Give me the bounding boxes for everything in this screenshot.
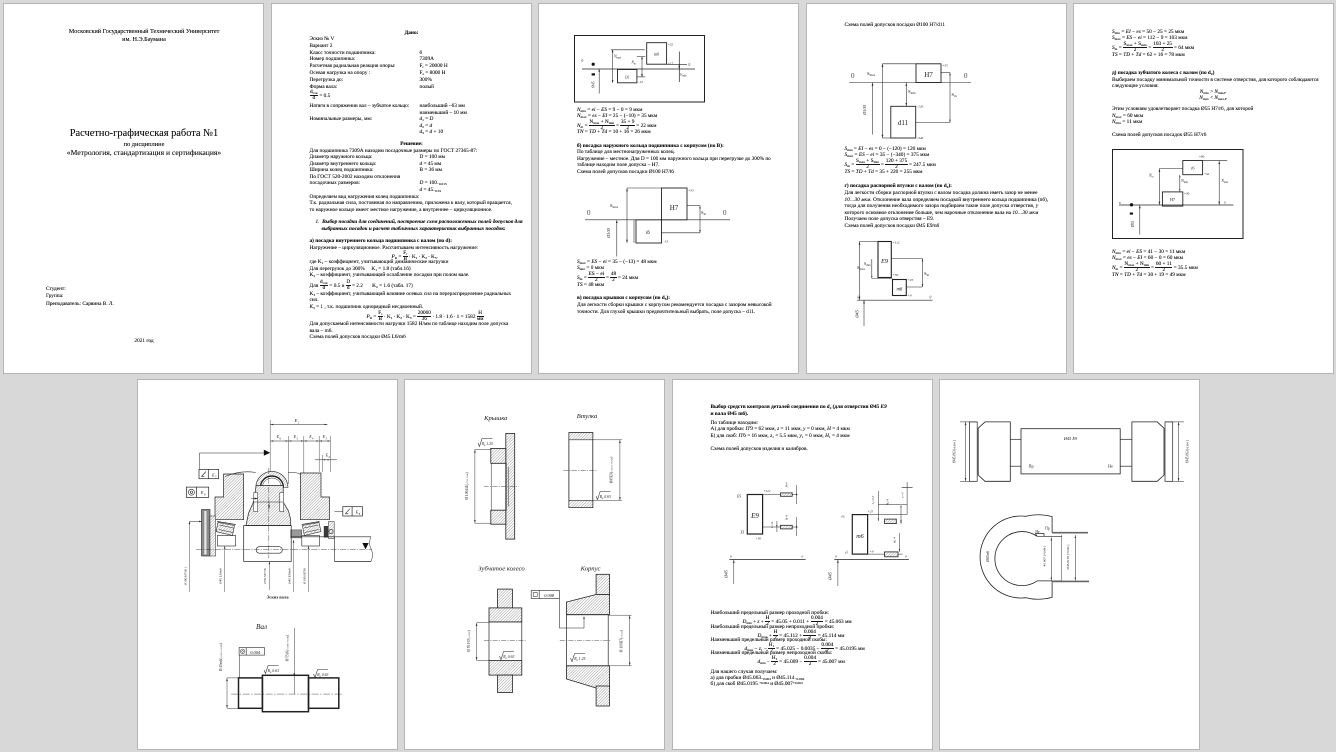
svg-text:m6: m6 [896,288,902,293]
svg-text:Ø45: Ø45 [827,571,832,581]
svg-text:m6: m6 [653,51,658,56]
svg-text:0: 0 [581,59,583,63]
svg-text:Ra 0.63: Ra 0.63 [266,669,278,674]
svg-text:Ra 0.63: Ra 0.63 [316,673,328,678]
svg-text:4: 4 [311,437,313,440]
svg-text:Ø 55r6(+0.060 +0.041): Ø 55r6(+0.060 +0.041) [285,633,289,660]
svg-text:l6: l6 [646,230,650,236]
svg-text:Ø100: Ø100 [862,104,867,116]
svg-text:45.007 (+0.004 ): 45.007 (+0.004 ) [1043,545,1047,566]
svg-text:0: 0 [964,72,968,80]
svg-text:Эскиз вала: Эскиз вала [266,594,289,599]
svg-text:ei: ei [845,550,848,554]
svg-text:Ø45м6: Ø45м6 [986,550,990,562]
svg-text:+25: +25 [668,42,674,46]
svg-text:m6: m6 [856,533,864,540]
svg-text:Nmin: Nmin [1181,179,1188,184]
svg-text:Ø100 H7/d11: Ø100 H7/d11 [183,566,187,585]
svg-text:Ø45: Ø45 [591,81,595,87]
svg-text:0: 0 [905,554,907,558]
svg-text:Nmax: Nmax [614,54,622,59]
svg-text:H1-4: H1-4 [892,536,897,543]
svg-text:y=3: y=3 [900,492,904,499]
svg-text:-12: -12 [638,80,643,84]
svg-text:z1=5.5: z1=5.5 [870,495,875,505]
svg-text:H7: H7 [670,204,679,212]
svg-text:es: es [841,514,845,518]
svg-text:Ø45.063(-0.004 ): Ø45.063(-0.004 ) [1186,439,1190,462]
svg-text:H-4: H-4 [784,514,788,520]
svg-text:Вал: Вал [255,623,266,631]
svg-text:r6: r6 [1190,166,1194,171]
svg-text:Ra 0.63: Ra 0.63 [502,655,514,660]
svg-text:0: 0 [1119,201,1121,205]
svg-text:Зубчатое колесо: Зубчатое колесо [478,565,525,572]
svg-text:H1-4: H1-4 [885,498,890,505]
svg-text:6: 6 [279,437,281,440]
svg-text:Ø 100d11(-0.12 -0.34): Ø 100d11(-0.12 -0.34) [465,471,469,499]
svg-text:z=11: z=11 [770,521,774,529]
svg-text:Sm: Sm [924,271,930,277]
svg-text:Ø45E9(+0.112 +0.050): Ø45E9(+0.112 +0.050) [610,455,614,482]
svg-text:Корпус: Корпус [580,565,601,572]
svg-text:2: 2 [328,456,330,459]
svg-text:0.004: 0.004 [250,650,261,655]
svg-text:-340: -340 [917,136,924,140]
svg-text:Крышка: Крышка [483,415,508,422]
svg-text:0: 0 [723,209,727,217]
svg-text:0: 0 [801,554,803,558]
svg-text:E9: E9 [750,512,759,520]
svg-text:Ø45 E9/m6: Ø45 E9/m6 [287,567,291,583]
svg-text:Smin: Smin [864,261,871,267]
svg-text:+25: +25 [907,278,913,282]
svg-text:Не: Не [1108,463,1113,468]
svg-text:Smax: Smax [867,71,875,77]
svg-text:Sm: Sm [701,210,707,216]
svg-text:+50: +50 [755,536,761,540]
svg-text:H-4: H-4 [784,482,788,488]
svg-text:+17: +17 [668,61,674,65]
svg-text:+60: +60 [1199,155,1205,159]
svg-text:Ø55 M7/r6: Ø55 M7/r6 [263,568,267,583]
svg-text:Втулка: Втулка [577,413,598,420]
svg-text:Ø100 H7/l6: Ø100 H7/l6 [302,567,306,583]
svg-text:Nm: Nm [630,60,635,65]
svg-text:0: 0 [730,554,732,558]
svg-text:+112: +112 [763,489,770,493]
svg-text:0.008: 0.008 [544,593,555,598]
svg-text:Пр: Пр [1028,463,1033,468]
svg-text:5: 5 [296,437,298,440]
svg-text:Smin: Smin [908,89,916,95]
svg-text:Ø45.063(-0.004 ): Ø45.063(-0.004 ) [953,439,957,462]
svg-text:Не: Не [1035,530,1040,534]
svg-text:+9: +9 [869,549,873,553]
svg-text:Пр: Пр [1045,526,1050,530]
svg-text:0: 0 [929,296,931,300]
svg-text:Nmax: Nmax [1220,179,1229,184]
svg-text:0: 0 [835,554,837,558]
svg-text:1: 1 [297,420,299,424]
svg-text:Nm: Nm [1148,174,1154,179]
svg-text:7: 7 [215,474,217,478]
svg-text:d11: d11 [897,119,908,127]
svg-text:0: 0 [1224,201,1226,205]
svg-text:Ø55: Ø55 [1131,221,1135,228]
svg-text:Ø 55 H7(+0.030): Ø 55 H7(+0.030) [467,629,471,651]
svg-text:+35: +35 [688,188,694,192]
svg-text:Ra 1.25: Ra 1.25 [481,442,493,447]
svg-text:Ra 0.63: Ra 0.63 [599,495,611,500]
svg-text:Ø 45m6(+0.025 +0.009): Ø 45m6(+0.025 +0.009) [219,642,223,671]
svg-text:+35: +35 [942,64,948,68]
svg-text:+30: +30 [1184,192,1190,196]
svg-text:0: 0 [851,72,855,80]
svg-text:-13: -13 [664,239,669,243]
svg-text:Ø100: Ø100 [606,227,611,239]
svg-text:8: 8 [358,511,360,515]
svg-text:Ø45 L6/m6: Ø45 L6/m6 [218,567,222,583]
svg-text:Ø45: Ø45 [723,569,728,579]
svg-text:0: 0 [587,209,591,217]
svg-text:+25: +25 [867,509,873,513]
svg-text:L6: L6 [624,74,629,79]
svg-text:ES: ES [736,494,741,498]
svg-text:0: 0 [203,492,205,496]
svg-text:Ø45.0195 (+0.004 ): Ø45.0195 (+0.004 ) [1066,544,1070,569]
svg-text:E9: E9 [880,258,889,265]
svg-text:Smax: Smax [610,203,618,209]
svg-text:Sm: Sm [951,92,957,98]
svg-text:0: 0 [857,296,859,300]
svg-text:Ø45: Ø45 [854,309,859,318]
svg-text:H7: H7 [1170,197,1175,202]
svg-text:-120: -120 [917,105,924,109]
svg-text:+112: +112 [892,241,899,245]
svg-text:0: 0 [688,62,690,66]
svg-text:3: 3 [325,437,327,440]
svg-text:Ø45 Е9: Ø45 Е9 [1063,436,1078,441]
svg-text:Nmin: Nmin [680,72,687,77]
svg-text:+41: +41 [1204,172,1210,176]
svg-text:H7: H7 [924,71,933,79]
svg-text:+9: +9 [907,294,911,298]
svg-text:EI: EI [739,530,744,534]
svg-text:Ra 1.25: Ra 1.25 [573,657,585,662]
svg-text:Ø 100H7(+0.035): Ø 100H7(+0.035) [620,628,624,651]
svg-text:+50: +50 [892,273,898,277]
